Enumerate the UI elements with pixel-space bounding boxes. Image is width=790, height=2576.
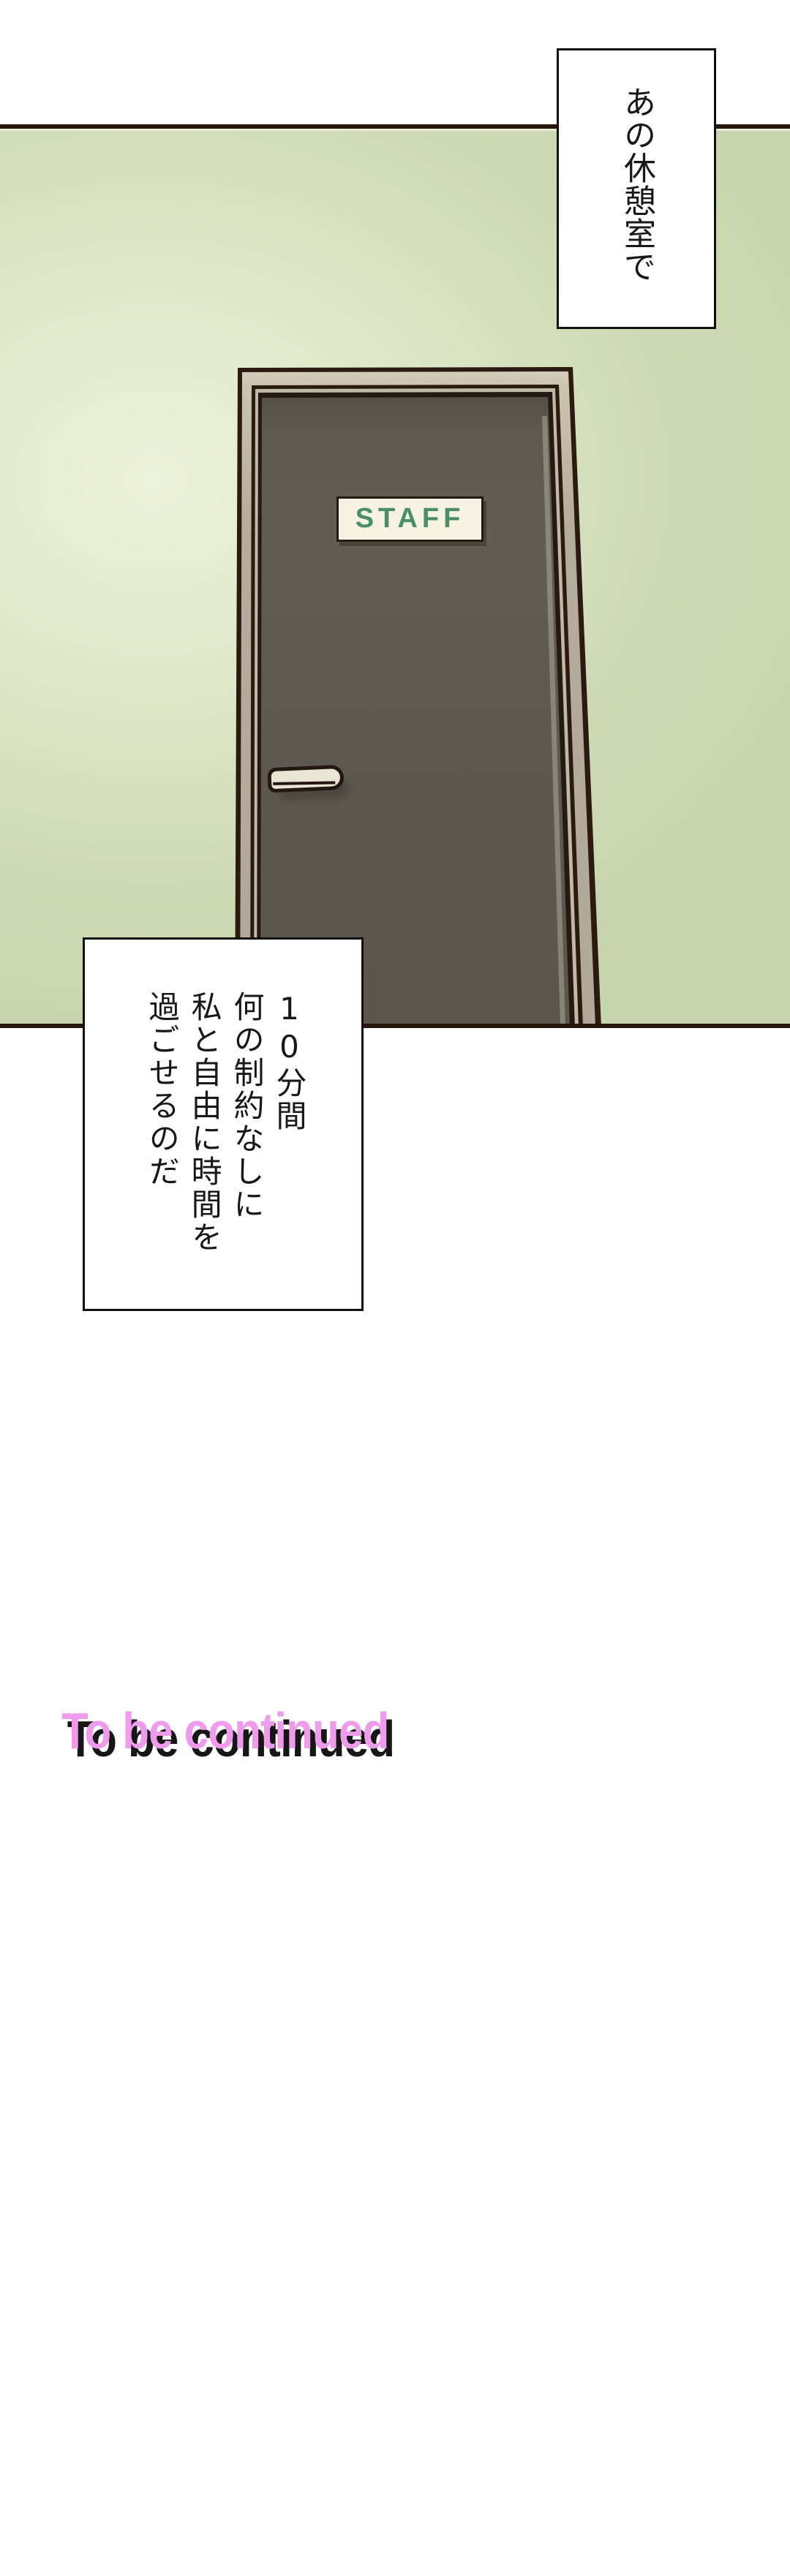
- door-face: [235, 365, 605, 1027]
- staff-sign-label: STAFF: [355, 503, 465, 535]
- speech-bubble-top: あの休憩室で: [557, 48, 716, 329]
- door-handle: [267, 765, 344, 793]
- to-be-continued-text: To be continued: [61, 1705, 388, 1756]
- staff-room-door: STAFF: [235, 365, 605, 1027]
- manga-page: STAFF あの休憩室で 10分間 何の制約なしに 私と自由に時間を 過ごせるの…: [0, 0, 790, 2576]
- speech-bubble-bottom-text: 10分間 何の制約なしに 私と自由に時間を 過ごせるのだ: [140, 991, 310, 1254]
- speech-bubble-top-text: あの休憩室で: [620, 86, 652, 283]
- staff-sign: STAFF: [336, 496, 484, 542]
- speech-bubble-bottom: 10分間 何の制約なしに 私と自由に時間を 過ごせるのだ: [83, 937, 364, 1311]
